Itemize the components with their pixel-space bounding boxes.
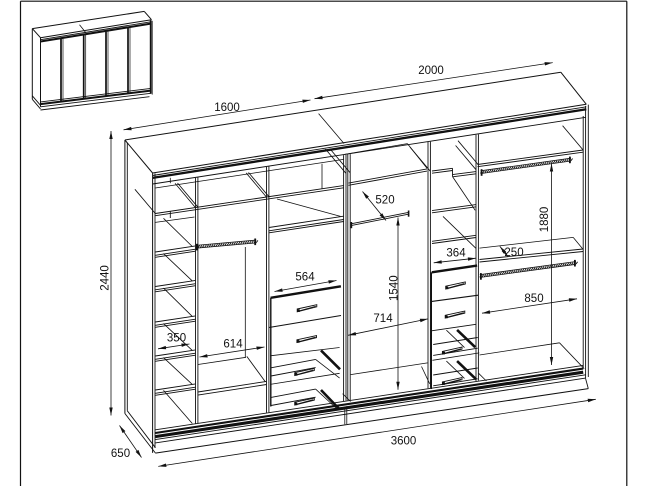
svg-text:1540: 1540: [389, 275, 401, 301]
svg-text:364: 364: [446, 248, 466, 260]
svg-text:564: 564: [295, 272, 315, 284]
svg-text:2440: 2440: [100, 265, 112, 291]
svg-text:850: 850: [524, 293, 543, 305]
svg-text:250: 250: [504, 247, 523, 259]
svg-text:1600: 1600: [214, 102, 240, 114]
svg-text:1880: 1880: [539, 207, 551, 233]
svg-text:3600: 3600: [391, 436, 417, 448]
svg-text:350: 350: [167, 332, 186, 344]
svg-text:520: 520: [375, 195, 394, 207]
svg-text:650: 650: [111, 448, 130, 460]
svg-text:714: 714: [373, 313, 393, 325]
svg-text:2000: 2000: [418, 65, 444, 77]
svg-text:614: 614: [223, 339, 243, 351]
